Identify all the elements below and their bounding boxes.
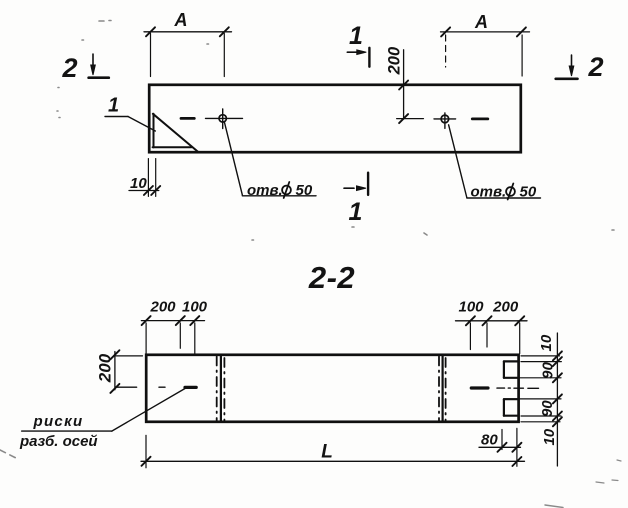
svg-text:100: 100 — [458, 299, 484, 316]
svg-text:10: 10 — [541, 428, 558, 445]
svg-text:80: 80 — [481, 432, 498, 449]
svg-text:A: A — [474, 12, 488, 32]
svg-text:разб. осей: разб. осей — [19, 433, 98, 450]
svg-text:200: 200 — [149, 299, 176, 316]
svg-text:2-2: 2-2 — [308, 260, 355, 295]
svg-text:риски: риски — [33, 413, 84, 430]
svg-text:2: 2 — [587, 52, 603, 82]
svg-text:90: 90 — [539, 400, 556, 417]
svg-text:2: 2 — [61, 53, 77, 83]
svg-text:200: 200 — [96, 353, 115, 383]
svg-text:A: A — [174, 10, 188, 30]
svg-text:L: L — [321, 442, 333, 463]
svg-text:50: 50 — [520, 184, 537, 201]
svg-text:100: 100 — [182, 299, 208, 316]
svg-text:200: 200 — [386, 46, 404, 75]
svg-text:1: 1 — [108, 95, 119, 117]
svg-text:90: 90 — [540, 362, 557, 379]
svg-text:10: 10 — [538, 334, 555, 351]
svg-text:10: 10 — [130, 175, 147, 192]
svg-text:200: 200 — [492, 299, 519, 316]
svg-text:1: 1 — [349, 22, 363, 50]
svg-text:отв.: отв. — [247, 182, 283, 199]
svg-text:1: 1 — [349, 198, 363, 226]
svg-text:отв.: отв. — [471, 184, 507, 201]
svg-text:50: 50 — [296, 182, 313, 199]
